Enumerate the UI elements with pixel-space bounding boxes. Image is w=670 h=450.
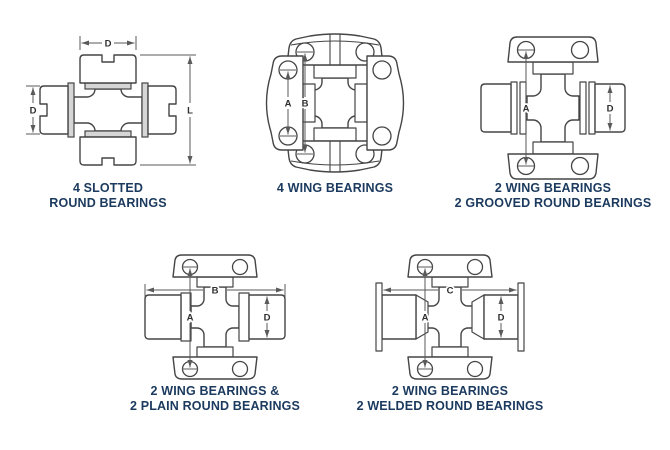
right-groove-ring-outer [589,82,595,134]
cross-body [527,74,579,142]
caption-line-1: 2 WING BEARINGS [330,384,570,399]
figure-welded-round: C A D [350,245,550,385]
right-retainer-band [142,83,148,137]
caption-line-1: 2 WING BEARINGS [438,181,668,196]
bottom-slotted-bearing [80,137,136,165]
left-groove-ring-outer [511,82,517,134]
dimension-label-l: L [187,106,193,117]
bottom-wing-bolt-hole-right [572,158,589,175]
dimension-width-top: D [80,36,136,50]
caption-plain-round: 2 WING BEARINGS & 2 PLAIN ROUND BEARINGS [100,384,330,414]
caption-line-2: 2 GROOVED ROUND BEARINGS [438,196,668,211]
top-cup [533,62,573,74]
dimension-label-a: A [187,313,194,324]
dimension-label-a: A [422,313,429,324]
right-step-band [239,293,249,341]
figure-four-wing: A B [235,8,435,180]
dimension-label-d-left: D [30,106,37,117]
bottom-cup [432,347,468,357]
bottom-wing-bolt-hole-right [233,362,248,377]
caption-line-2: 2 PLAIN ROUND BEARINGS [100,399,330,414]
right-weld-flange [518,283,524,351]
top-wing-bolt-hole-right [572,42,589,59]
bottom-wing-bolt-hole-right [468,362,483,377]
right-groove-ring-inner [580,82,586,134]
right-wing-bolt-hole-top [373,61,391,79]
dimension-label-d: D [607,104,614,115]
top-wing-bolt-hole-right [233,260,248,275]
caption-grooved-round: 2 WING BEARINGS 2 GROOVED ROUND BEARINGS [438,181,668,211]
plain-round-bearings-diagram: B A D [115,245,315,385]
caption-line-1: 4 SLOTTED [8,181,208,196]
four-wing-bearings-diagram: A B [235,8,435,180]
bottom-cup [533,142,573,154]
left-welded-bearing [382,295,416,339]
dimension-label-b: B [302,99,309,110]
caption-four-wing: 4 WING BEARINGS [235,181,435,196]
slotted-round-bearings-diagram: D D L [8,10,208,182]
cross-body [74,89,142,131]
bearing-types-diagram-page: D D L 4 SLOTTED ROUND BEARINGS [0,0,670,450]
left-weld-flange [376,283,382,351]
caption-line-1: 2 WING BEARINGS & [100,384,330,399]
right-slotted-bearing [148,86,176,134]
right-cup [355,84,367,122]
dimension-label-a: A [285,99,292,110]
figure-grooved-round: A D [453,10,653,182]
figure-slotted-round: D D L [8,10,208,182]
left-plain-bearing [145,295,181,339]
dimension-label-d: D [264,313,271,324]
top-cup [314,65,356,78]
caption-line-2: ROUND BEARINGS [8,196,208,211]
dimension-diameter-left: D [26,86,40,134]
dimension-label-c: C [447,286,454,297]
bottom-cup [314,128,356,141]
bottom-retainer-band [85,131,131,137]
welded-round-bearings-diagram: C A D [350,245,550,385]
dimension-label-a: A [523,104,530,115]
right-taper [472,295,484,339]
left-slotted-bearing [40,86,68,134]
caption-slotted-round: 4 SLOTTED ROUND BEARINGS [8,181,208,211]
dimension-label-b: B [212,286,219,297]
caption-line-2: 2 WELDED ROUND BEARINGS [330,399,570,414]
top-retainer-band [85,83,131,89]
bottom-cup [197,347,233,357]
right-wing-bolt-hole-bottom [373,127,391,145]
dimension-label-d: D [498,313,505,324]
caption-line-1: 4 WING BEARINGS [235,181,435,196]
top-wing-bolt-hole-right [468,260,483,275]
figure-plain-round: B A D [115,245,315,385]
grooved-round-bearings-diagram: A D [453,10,653,182]
left-grooved-bearing [481,84,511,132]
cross-body [309,78,361,128]
left-retainer-band [68,83,74,137]
top-slotted-bearing [80,55,136,83]
caption-welded-round: 2 WING BEARINGS 2 WELDED ROUND BEARINGS [330,384,570,414]
dimension-label-d-top: D [105,39,112,50]
